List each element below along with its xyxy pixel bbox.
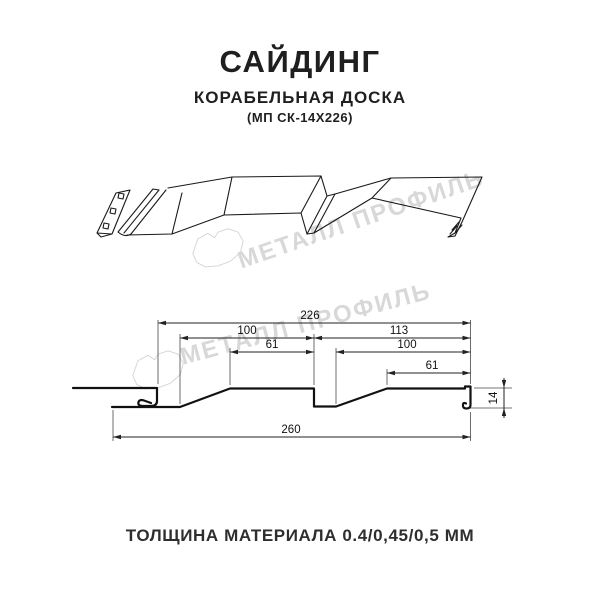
model-code: (МП СК-14Х226) [0, 110, 600, 125]
dim-label-61-left: 61 [266, 339, 279, 351]
dim-label-260: 260 [281, 424, 300, 436]
page-subtitle: КОРАБЕЛЬНАЯ ДОСКА [0, 88, 600, 108]
dim-label-100-left: 100 [237, 325, 256, 337]
dim-label-14: 14 [488, 391, 500, 404]
material-thickness-note: ТОЛЩИНА МАТЕРИАЛА 0.4/0,45/0,5 ММ [0, 526, 600, 546]
nail-strip [97, 190, 130, 237]
dim-label-100-right: 100 [397, 339, 416, 351]
dim-label-61-right: 61 [426, 360, 439, 372]
profile-outline [73, 387, 471, 409]
cross-section-drawing: 226 100 61 113 100 61 260 14 [0, 300, 600, 470]
dim-label-113: 113 [390, 325, 408, 337]
hem-hatching [450, 222, 462, 234]
panel-sheet [127, 176, 482, 237]
dimension-lines [113, 321, 506, 439]
dim-label-226: 226 [300, 310, 319, 322]
page-title: САЙДИНГ [0, 44, 600, 80]
panel-3d-view [0, 160, 600, 280]
